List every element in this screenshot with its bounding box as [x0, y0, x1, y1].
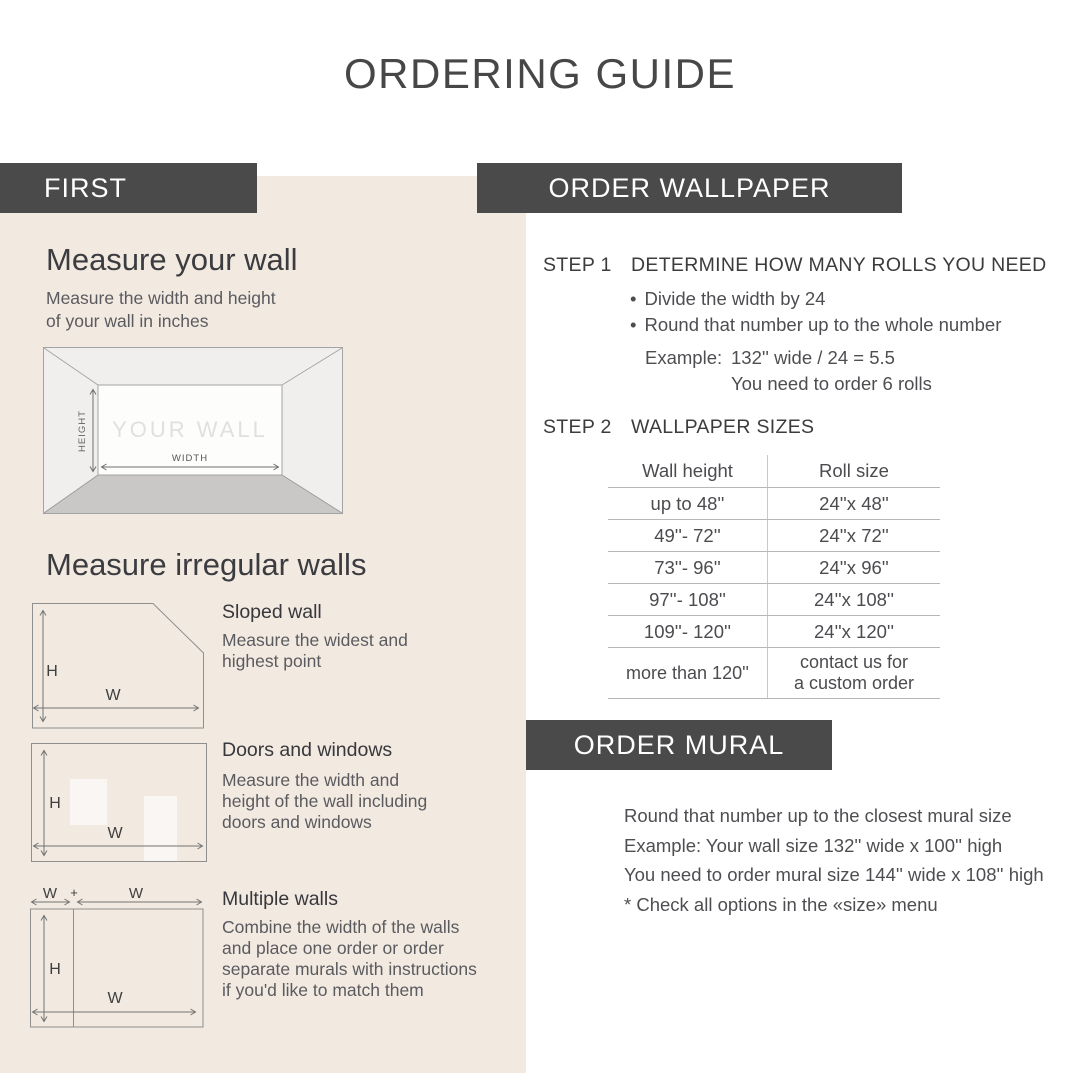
measure-wall-heading: Measure your wall: [46, 242, 298, 278]
width-label: WIDTH: [172, 453, 208, 464]
multi-h-label: H: [49, 961, 61, 978]
doors-windows-diagram: H W: [31, 743, 207, 862]
step2-row: STEP 2 WALLPAPER SIZES: [543, 416, 814, 439]
mural-instruction-line: Round that number up to the closest mura…: [624, 801, 1044, 831]
table-row: up to 48'' 24''x 48'': [608, 488, 940, 520]
order-mural-header-bar: ORDER MURAL: [526, 720, 832, 770]
cell-wall-height: 109''- 120'': [608, 616, 768, 647]
step1-row: STEP 1 DETERMINE HOW MANY ROLLS YOU NEED: [543, 254, 1047, 277]
sloped-wall-title: Sloped wall: [222, 601, 322, 624]
order-wallpaper-header-label: ORDER WALLPAPER: [548, 173, 830, 204]
wallpaper-sizes-table: Wall height Roll size up to 48'' 24''x 4…: [608, 455, 940, 699]
multi-plus-label: +: [70, 885, 78, 900]
bullet-item: Round that number up to the whole number: [630, 312, 1001, 338]
sloped-wall-diagram: H W: [32, 603, 204, 729]
mural-instruction-line: * Check all options in the «size» menu: [624, 890, 1044, 920]
table-row: 49''- 72'' 24''x 72'': [608, 520, 940, 552]
order-mural-instructions: Round that number up to the closest mura…: [624, 801, 1044, 919]
table-header-row: Wall height Roll size: [608, 455, 940, 488]
step1-label: STEP 1: [543, 254, 631, 277]
cell-roll-size: 24''x 108'': [768, 584, 940, 615]
irregular-walls-heading: Measure irregular walls: [46, 547, 366, 583]
cell-wall-height: 97''- 108'': [608, 584, 768, 615]
sloped-wall-body: Measure the widest and highest point: [222, 630, 408, 672]
first-header-label: FIRST: [44, 173, 127, 204]
cell-wall-height: up to 48'': [608, 488, 768, 519]
bullet-text: Round that number up to the whole number: [644, 312, 1001, 338]
step2-label: STEP 2: [543, 416, 631, 439]
step1-heading: DETERMINE HOW MANY ROLLS YOU NEED: [631, 254, 1047, 277]
step1-bullet-list: Divide the width by 24 Round that number…: [630, 286, 1001, 338]
order-wallpaper-header-bar: ORDER WALLPAPER: [477, 163, 902, 213]
cell-roll-size: 24''x 48'': [768, 488, 940, 519]
first-header-bar: FIRST: [0, 163, 257, 213]
column-header-roll-size: Roll size: [768, 455, 940, 487]
page-title: ORDERING GUIDE: [0, 50, 1080, 98]
multi-w-label: W: [107, 990, 123, 1007]
sloped-wall-outline: [33, 604, 204, 729]
doors-windows-title: Doors and windows: [222, 739, 392, 762]
multiple-walls-title: Multiple walls: [222, 888, 338, 911]
your-wall-watermark: YOUR WALL: [112, 417, 268, 442]
table-row: 97''- 108'' 24''x 108'': [608, 584, 940, 616]
doors-h-label: H: [49, 795, 61, 812]
doors-windows-body: Measure the width and height of the wall…: [222, 770, 427, 833]
sloped-h-label: H: [46, 663, 58, 680]
table-row: 73''- 96'' 24''x 96'': [608, 552, 940, 584]
cell-roll-size: 24''x 96'': [768, 552, 940, 583]
cell-wall-height: 49''- 72'': [608, 520, 768, 551]
ordering-guide-page: ORDERING GUIDE FIRST Measure your wall M…: [0, 0, 1080, 1080]
step1-example: Example: 132'' wide / 24 = 5.5 You need …: [645, 345, 932, 397]
bullet-item: Divide the width by 24: [630, 286, 1001, 312]
multiple-walls-diagram: W + W H W: [30, 885, 210, 1030]
example-calculation: 132'' wide / 24 = 5.5: [731, 345, 895, 371]
mural-instruction-line: You need to order mural size 144'' wide …: [624, 860, 1044, 890]
doors-w-label: W: [107, 825, 123, 842]
table-row: 109''- 120'' 24''x 120'': [608, 616, 940, 648]
table-row: more than 120'' contact us for a custom …: [608, 648, 940, 699]
multiple-walls-body: Combine the width of the walls and place…: [222, 917, 477, 1001]
height-label: HEIGHT: [77, 410, 88, 452]
order-mural-header-label: ORDER MURAL: [574, 730, 785, 761]
room-diagram: YOUR WALL HEIGHT WIDTH: [43, 347, 343, 514]
step2-heading: WALLPAPER SIZES: [631, 416, 814, 439]
example-result: You need to order 6 rolls: [731, 371, 932, 397]
multi-w-top-right-label: W: [129, 885, 144, 902]
cell-roll-size: contact us for a custom order: [768, 648, 940, 698]
cell-roll-size: 24''x 120'': [768, 616, 940, 647]
sloped-w-label: W: [105, 687, 121, 704]
measure-wall-body: Measure the width and height of your wal…: [46, 287, 276, 333]
cell-wall-height: 73''- 96'': [608, 552, 768, 583]
cell-wall-height: more than 120'': [608, 648, 768, 698]
bullet-text: Divide the width by 24: [644, 286, 825, 312]
example-label: Example:: [645, 345, 731, 371]
window-shape: [70, 779, 107, 825]
door-shape: [144, 796, 177, 861]
cell-roll-size: 24''x 72'': [768, 520, 940, 551]
column-header-wall-height: Wall height: [608, 455, 768, 487]
multi-w-top-left-label: W: [43, 885, 58, 902]
mural-instruction-line: Example: Your wall size 132'' wide x 100…: [624, 831, 1044, 861]
